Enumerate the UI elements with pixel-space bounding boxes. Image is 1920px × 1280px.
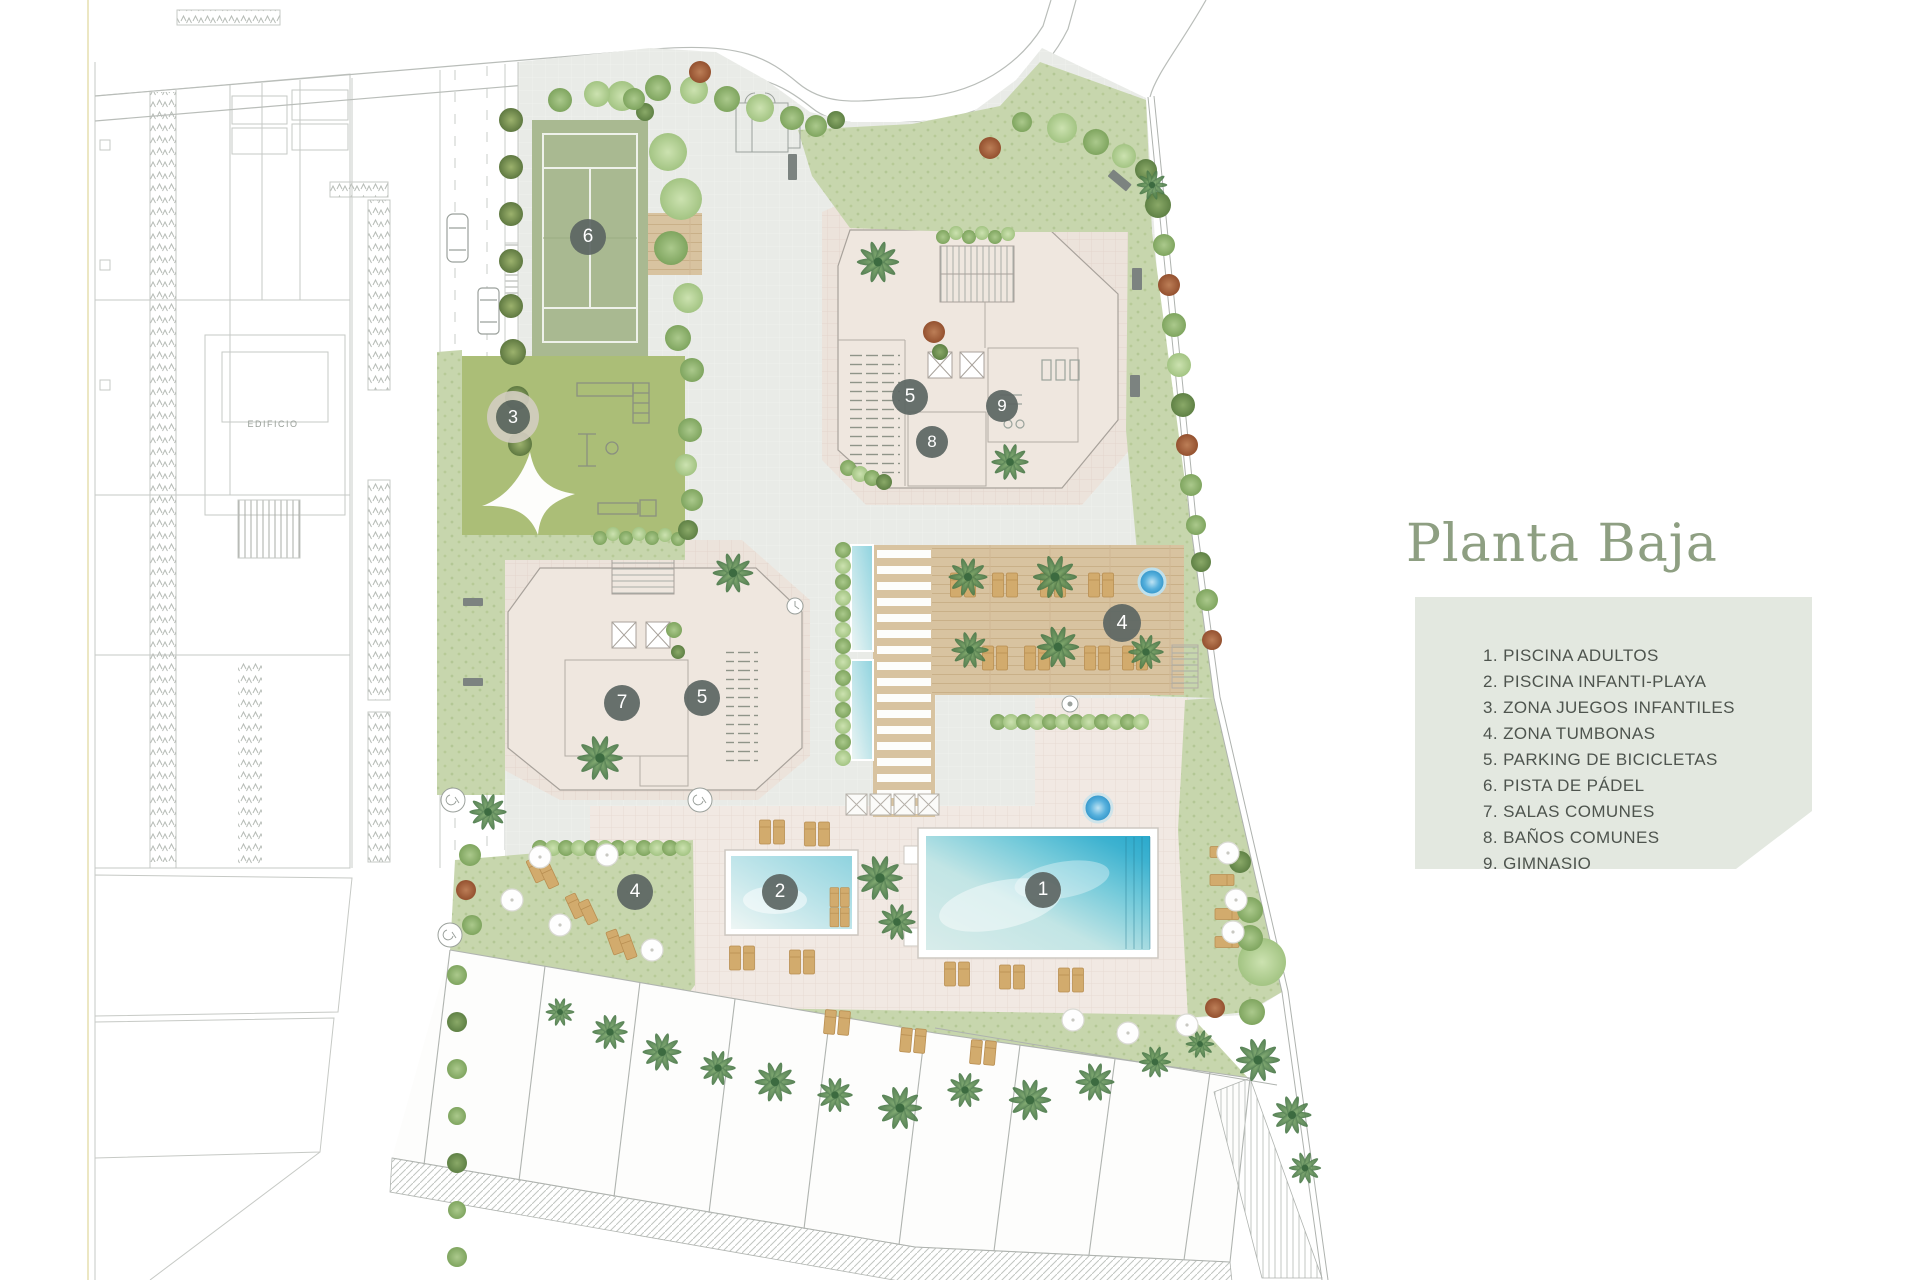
legend-item: 6. PISTA DE PÁDEL [1483, 773, 1812, 799]
page-title: Planta Baja [1406, 514, 1718, 574]
water-channel [851, 660, 873, 760]
stairs [1172, 645, 1198, 688]
planter-box [846, 794, 867, 815]
legend-item: 1. PISCINA ADULTOS [1483, 643, 1812, 669]
legend-item: 3. ZONA JUEGOS INFANTILES [1483, 695, 1812, 721]
spa-pool [1139, 569, 1165, 595]
bike-racks [848, 348, 900, 480]
spa-pool [1084, 794, 1112, 822]
legend-item: 8. BAÑOS COMUNES [1483, 825, 1812, 851]
building-b [508, 540, 802, 790]
elevator [960, 352, 984, 378]
water-channel [851, 545, 873, 651]
planter-box [894, 794, 915, 815]
neighbor-building-label: EDIFICIO [228, 419, 318, 429]
planter-box [870, 794, 891, 815]
elevator [646, 622, 670, 648]
legend-item: 4. ZONA TUMBONAS [1483, 721, 1812, 747]
site-plan-page: Planta Baja 1. PISCINA ADULTOS2. PISCINA… [0, 0, 1920, 1280]
playground [460, 356, 685, 560]
pool-adults [904, 828, 1158, 958]
elevator [612, 622, 636, 648]
pool-kids [725, 850, 858, 935]
bike-racks [726, 648, 758, 762]
legend-item: 7. SALAS COMUNES [1483, 799, 1812, 825]
legend-item: 2. PISCINA INFANTI-PLAYA [1483, 669, 1812, 695]
legend-panel: 1. PISCINA ADULTOS2. PISCINA INFANTI-PLA… [1415, 597, 1812, 869]
legend-item: 5. PARKING DE BICICLETAS [1483, 747, 1812, 773]
neighboring-buildings [95, 10, 390, 1280]
planter-box [918, 794, 939, 815]
legend-items: 1. PISCINA ADULTOS2. PISCINA INFANTI-PLA… [1483, 643, 1812, 877]
